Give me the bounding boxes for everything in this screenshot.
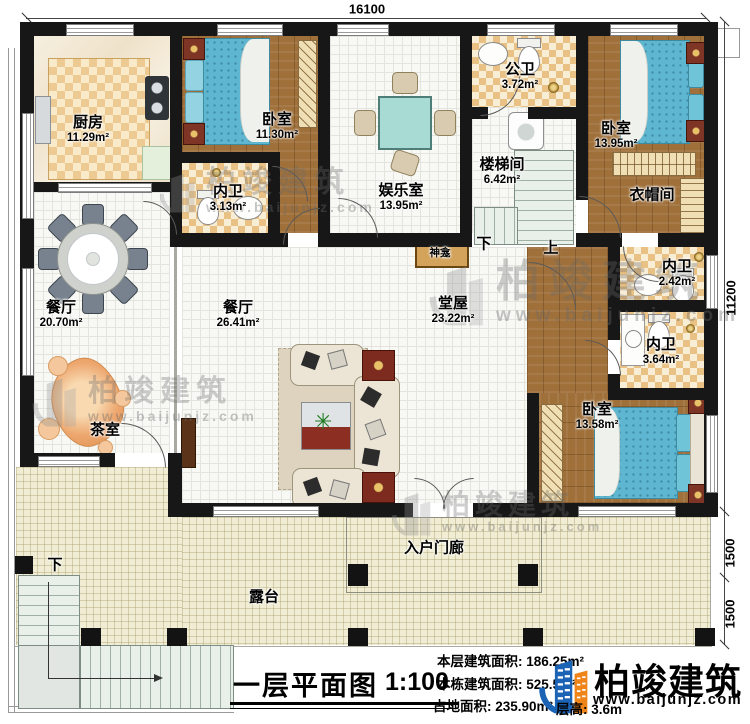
stair-direction-line (48, 678, 156, 679)
room-name: 卧室 (256, 112, 298, 129)
room-area: 23.22m² (432, 313, 475, 326)
room-label: 餐厅26.41m² (217, 300, 260, 330)
window (213, 506, 319, 517)
wall (170, 36, 182, 233)
room-area: 11.30m² (256, 129, 298, 142)
window (22, 268, 34, 376)
room-name: 厨房 (67, 115, 109, 132)
window (706, 415, 718, 493)
fixture-knob (686, 324, 695, 333)
wall (528, 107, 576, 119)
game-table-set (352, 70, 456, 174)
site-line-left (8, 48, 15, 712)
window (217, 24, 283, 36)
dimension-line-top (26, 18, 706, 19)
room-label: 厨房11.29m² (67, 115, 109, 145)
wall (170, 152, 280, 163)
side-table (362, 350, 395, 381)
dimension-label: 1500 (723, 600, 738, 629)
room-name: 露台 (249, 590, 279, 607)
room-label: 堂屋23.22m² (432, 296, 475, 326)
room-label: 露台 (249, 590, 279, 607)
room-name: 楼梯间 (479, 157, 524, 174)
window (22, 113, 34, 219)
room-label: 内卫3.64m² (643, 337, 679, 367)
wardrobe (298, 40, 317, 128)
wall (168, 453, 182, 517)
window (610, 24, 678, 36)
window (38, 456, 100, 467)
dining-table-set (40, 206, 144, 310)
stat-label: 本栋建筑面积: (437, 677, 523, 692)
closet-rack (612, 152, 696, 176)
room-area: 2.42m² (659, 276, 695, 289)
plant-icon: ✳ (314, 411, 332, 433)
room-name: 上 (543, 241, 558, 258)
room-label: 卧室11.30m² (256, 112, 298, 142)
room-area: 26.41m² (217, 317, 260, 330)
nightstand (686, 42, 706, 64)
room-name: 公卫 (502, 62, 538, 79)
room-label: 公卫3.72m² (502, 62, 538, 92)
wall (170, 233, 288, 247)
room-name: 茶室 (90, 423, 120, 440)
room-area: 11.29m² (67, 132, 109, 145)
wall (620, 300, 718, 312)
room-name: 餐厅 (40, 300, 83, 317)
room-name: 卧室 (595, 121, 638, 138)
room-name: 内卫 (643, 337, 679, 354)
wall (527, 393, 539, 517)
plan-title: 一层平面图 (233, 664, 378, 703)
room-label: 卧室13.95m² (595, 121, 638, 151)
room-label: 卧室13.58m² (576, 402, 619, 432)
window (578, 506, 676, 517)
window (706, 255, 718, 309)
room-label: 下 (47, 558, 62, 575)
side-table (362, 472, 395, 503)
tearoom-rug (38, 348, 134, 460)
room-label: 下 (476, 237, 491, 254)
stat-label: 层高: (556, 702, 588, 717)
room-area: 3.64m² (643, 354, 679, 367)
wall (576, 36, 588, 200)
stove (145, 76, 169, 120)
wall (318, 36, 330, 233)
stair-direction-arrow (154, 674, 163, 682)
room-name: 内卫 (659, 259, 695, 276)
room-name: 下 (47, 558, 62, 575)
room-label: 衣帽间 (629, 188, 674, 205)
fixture-knob (548, 82, 559, 93)
room-area: 13.58m² (576, 419, 619, 432)
room-label: 茶室 (90, 423, 120, 440)
side-cabinet (181, 418, 196, 468)
dimension-label: 11200 (724, 280, 739, 315)
column (695, 628, 715, 646)
room-label: 入户门廊 (404, 541, 464, 558)
column (518, 564, 538, 586)
column (167, 628, 187, 646)
room-area: 3.72m² (502, 79, 538, 92)
door-arc-bath3 (585, 340, 621, 376)
stat-label: 本层建筑面积: (437, 654, 523, 669)
floor-plan: ✳ 柏竣建筑 www.baijunjz.com 柏竣建筑 www.baijunj… (0, 0, 750, 724)
room-label: 神龛 (430, 248, 451, 260)
stat-value: 3.6m (591, 702, 622, 717)
room-name: 卧室 (576, 402, 619, 419)
room-area: 20.70m² (40, 317, 83, 330)
fixture-knob (212, 168, 221, 177)
closet-rack (680, 178, 706, 234)
room-label: 餐厅20.70m² (40, 300, 83, 330)
room-label: 内卫3.13m² (210, 184, 246, 214)
room-name: 内卫 (210, 184, 246, 201)
room-area: 6.42m² (479, 174, 524, 187)
column (523, 628, 543, 646)
room-name: 堂屋 (432, 296, 475, 313)
title-underline-thin (230, 708, 458, 709)
wall (20, 22, 34, 467)
room-name: 衣帽间 (629, 188, 674, 205)
stat-floor-height: 层高: 3.6m (556, 698, 622, 718)
dimension-label: 1500 (723, 539, 738, 568)
window (337, 24, 389, 36)
room-area: 3.13m² (210, 201, 246, 214)
window (66, 24, 134, 36)
room-name: 娱乐室 (378, 183, 423, 200)
fixture-knob (694, 252, 704, 262)
column (81, 628, 101, 646)
exterior-stairs-landing (18, 645, 80, 709)
kitchen-cabinet (142, 146, 171, 180)
stat-label: 占地面积: (433, 699, 492, 714)
wardrobe (541, 404, 563, 502)
room-label: 上 (543, 241, 558, 258)
wall (608, 247, 620, 340)
column (348, 564, 368, 586)
room-name: 入户门廊 (404, 541, 464, 558)
wall (608, 388, 718, 400)
column (348, 628, 368, 646)
title-underline-thick (230, 702, 458, 705)
room-label: 内卫2.42m² (659, 259, 695, 289)
room-name: 下 (476, 237, 491, 254)
room-name: 餐厅 (217, 300, 260, 317)
dining-partition (174, 247, 177, 453)
column (15, 556, 33, 574)
dimension-label: 16100 (349, 2, 385, 17)
wall (658, 233, 718, 247)
room-label: 娱乐室13.95m² (378, 183, 423, 213)
kitchen-sink (35, 96, 51, 144)
wall (473, 503, 530, 517)
room-name: 神龛 (430, 248, 451, 260)
room-area: 13.95m² (378, 200, 423, 213)
room-area: 13.95m² (595, 138, 638, 151)
stair-direction-line (48, 582, 49, 678)
wall (460, 36, 472, 233)
vanity-counter (621, 314, 645, 366)
window (487, 24, 555, 36)
nightstand (686, 120, 706, 142)
kitchen-sliding-door (58, 183, 152, 193)
room-label: 楼梯间6.42m² (479, 157, 524, 187)
exterior-stairs-vertical (18, 575, 80, 647)
